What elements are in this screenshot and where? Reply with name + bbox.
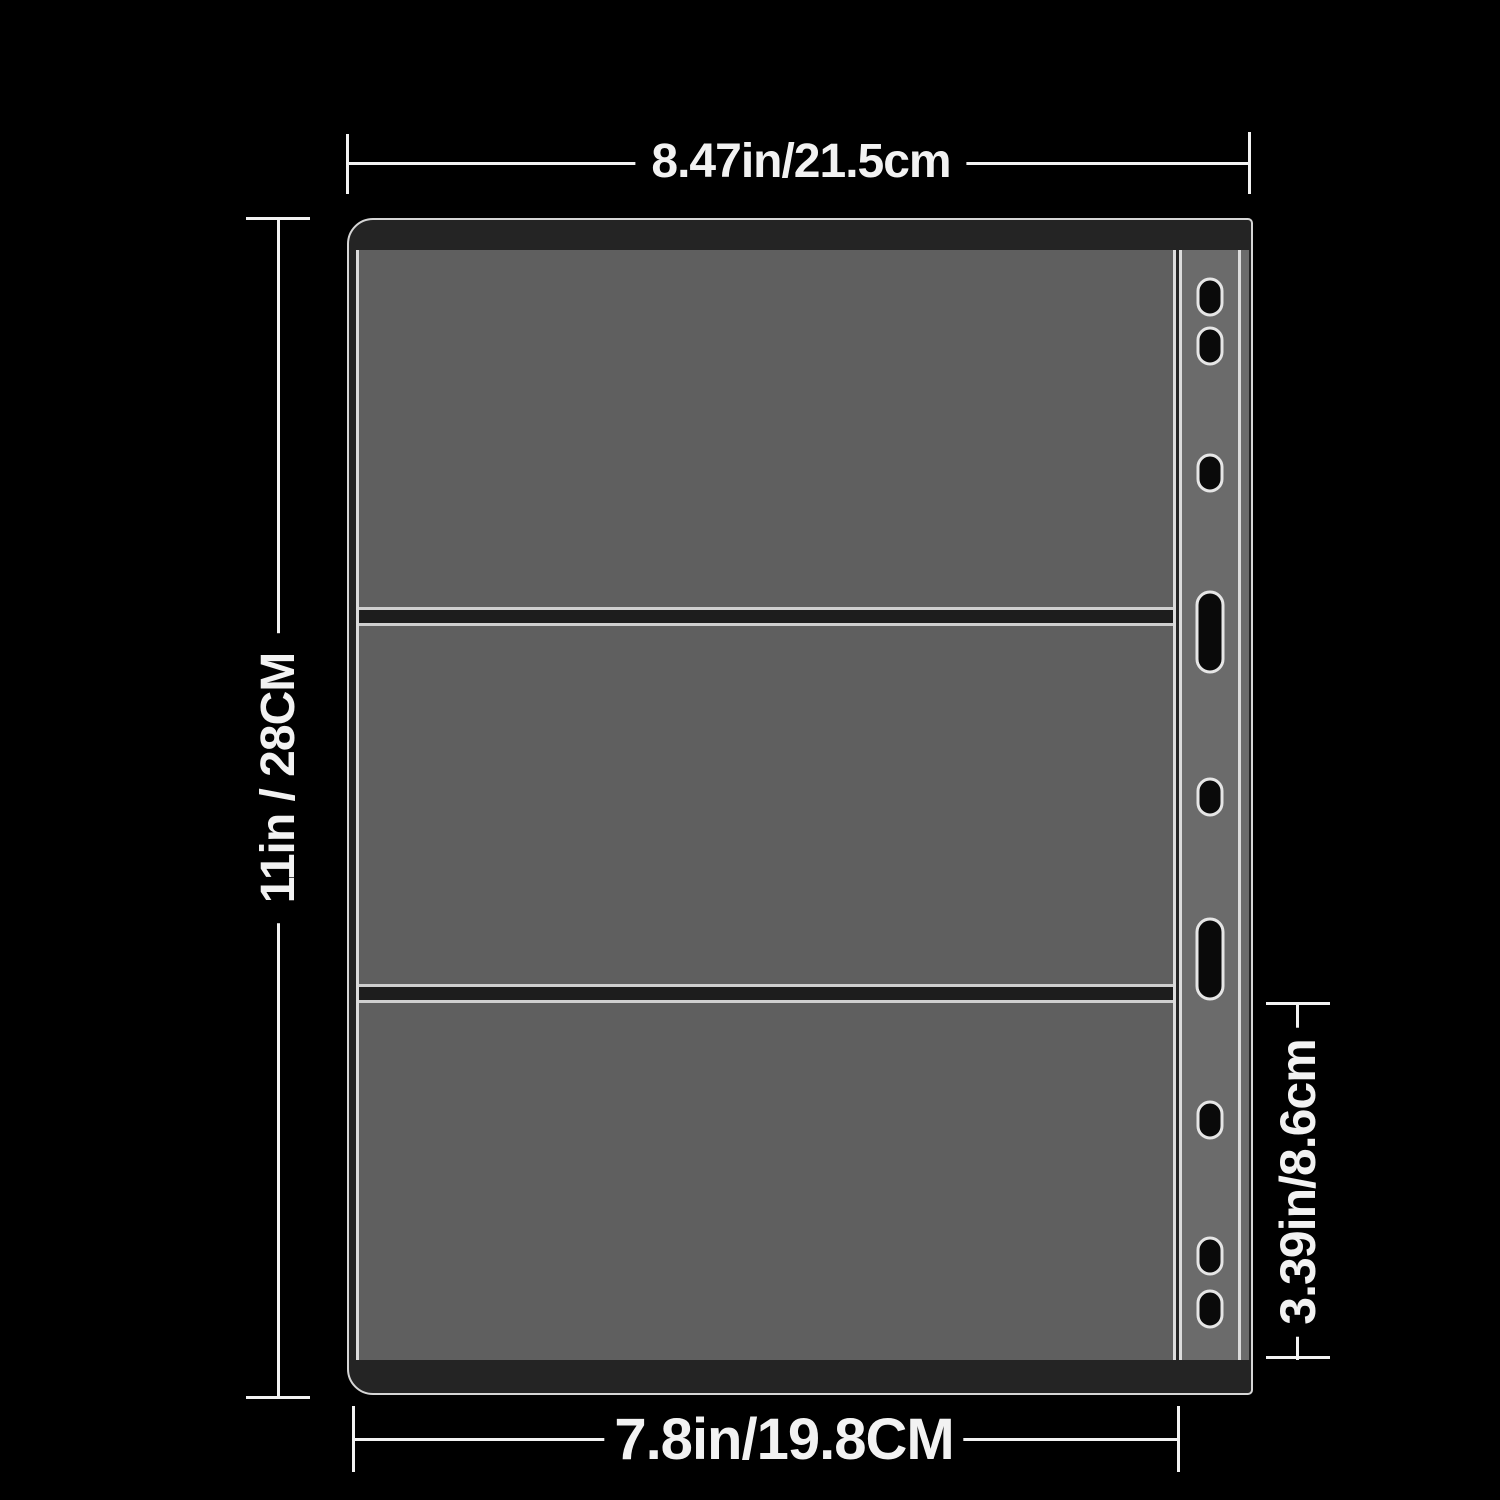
- binder-hole: [1197, 454, 1224, 493]
- pocket-3: [359, 1003, 1173, 1360]
- top-dimension-tick-left: [346, 134, 349, 194]
- pocket-column: [356, 250, 1176, 1360]
- binder-hole: [1197, 278, 1224, 317]
- binder-hole: [1197, 1101, 1224, 1140]
- top-dimension-tick-right: [1248, 132, 1251, 194]
- left-dimension-label: 11in / 28CM: [249, 633, 309, 923]
- bottom-dimension-tick-right: [1177, 1406, 1180, 1472]
- product-dimension-diagram: 8.47in/21.5cm 11in / 28CM 3.39in/8.6cm 7…: [0, 0, 1500, 1500]
- binder-pocket-page: [347, 218, 1253, 1395]
- pocket-divider-2: [359, 984, 1173, 1003]
- binding-edge-margin: [1241, 250, 1249, 1360]
- pocket-2: [359, 626, 1173, 983]
- left-dimension-cap-bottom: [246, 1396, 310, 1399]
- binder-slot-hole: [1196, 591, 1225, 674]
- binder-hole: [1197, 778, 1224, 817]
- binder-hole: [1197, 1237, 1224, 1276]
- binder-hole: [1197, 1290, 1224, 1329]
- page-body: [353, 250, 1249, 1360]
- bottom-dimension-label: 7.8in/19.8CM: [604, 1407, 963, 1473]
- binding-strip: [1179, 250, 1241, 1360]
- right-dimension-label: 3.39in/8.6cm: [1269, 1027, 1327, 1336]
- binder-hole: [1197, 327, 1224, 366]
- binder-slot-hole: [1196, 918, 1225, 1001]
- right-dimension-cap-top: [1266, 1002, 1330, 1005]
- top-dimension-label: 8.47in/21.5cm: [635, 132, 966, 192]
- right-dimension-cap-bottom: [1266, 1356, 1330, 1359]
- pocket-1: [359, 250, 1173, 607]
- bottom-dimension-tick-left: [352, 1406, 355, 1472]
- left-dimension-cap-top: [246, 217, 310, 220]
- pocket-divider-1: [359, 607, 1173, 626]
